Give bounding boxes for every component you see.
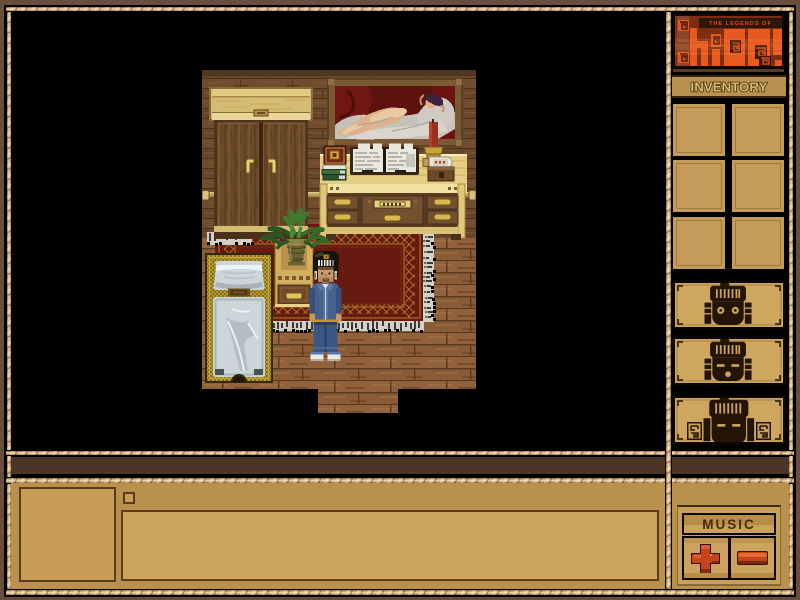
svg-text:MUSIC: MUSIC (702, 517, 756, 532)
svg-text:THE LEGENDS OF: THE LEGENDS OF (709, 21, 772, 27)
svg-text:INVENTORY: INVENTORY (691, 80, 768, 95)
